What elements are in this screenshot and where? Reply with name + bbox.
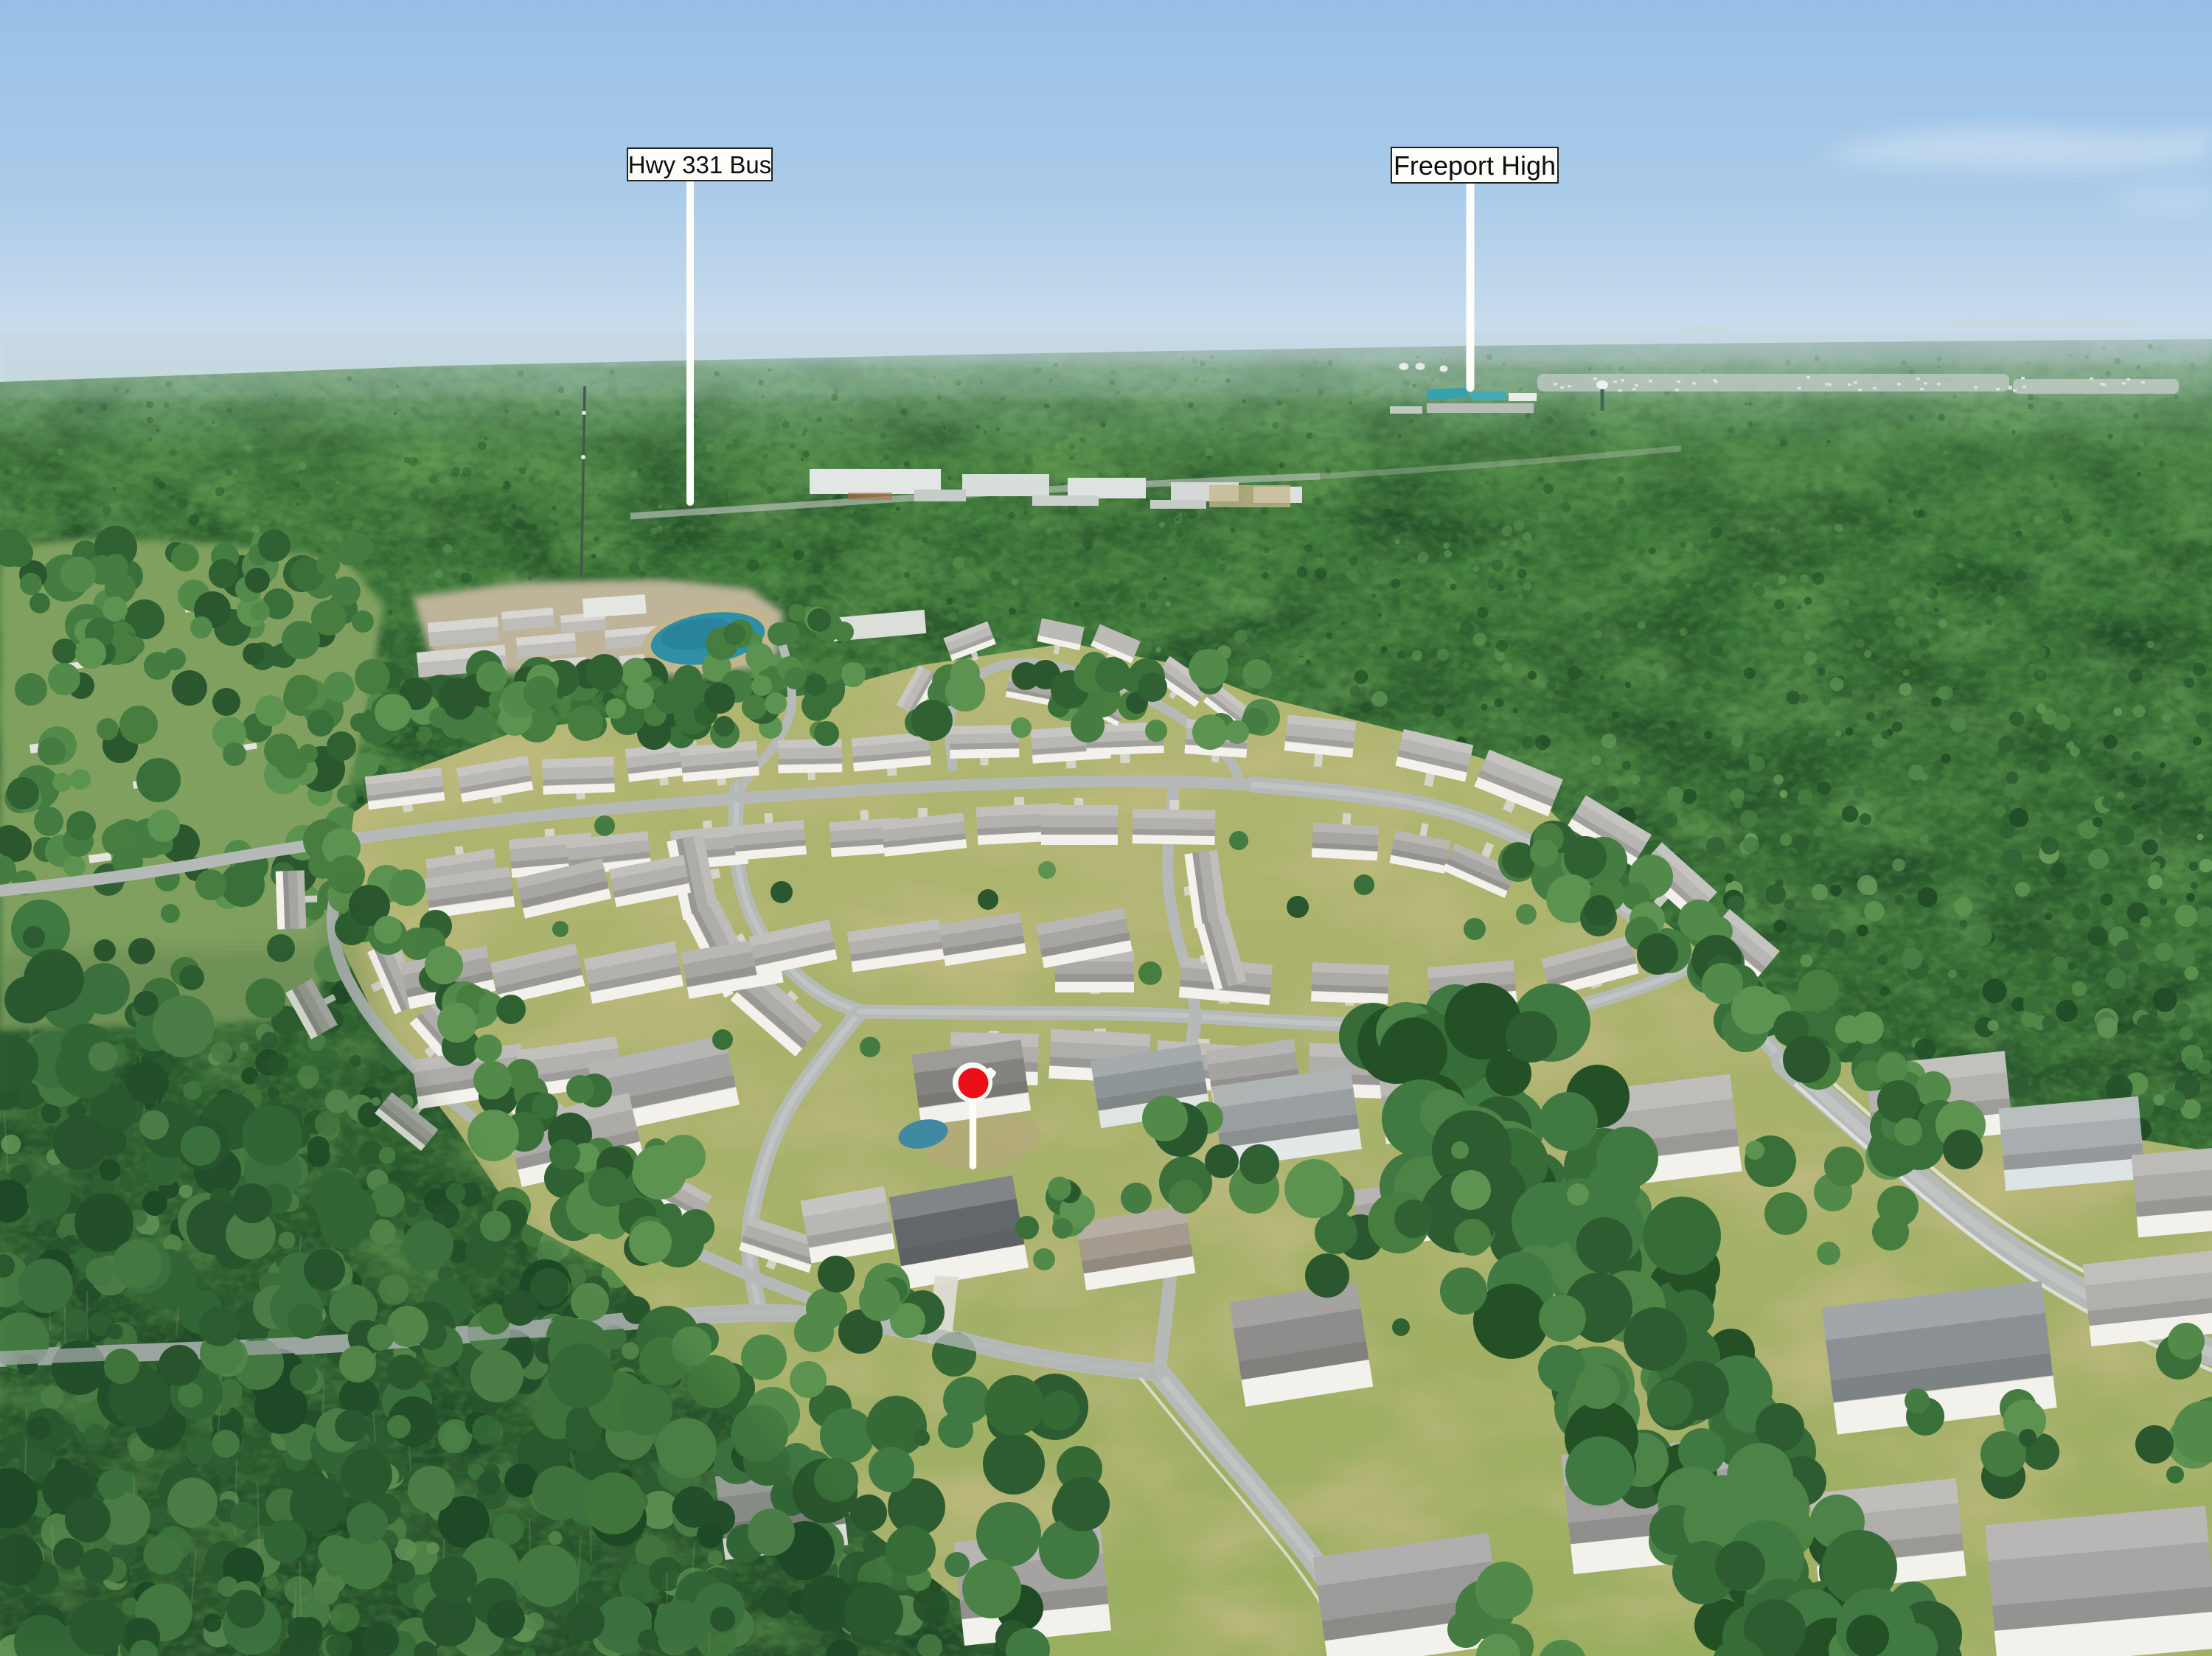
- svg-text:Hwy 331 Bus: Hwy 331 Bus: [628, 151, 771, 178]
- svg-text:Freeport High: Freeport High: [1394, 150, 1556, 181]
